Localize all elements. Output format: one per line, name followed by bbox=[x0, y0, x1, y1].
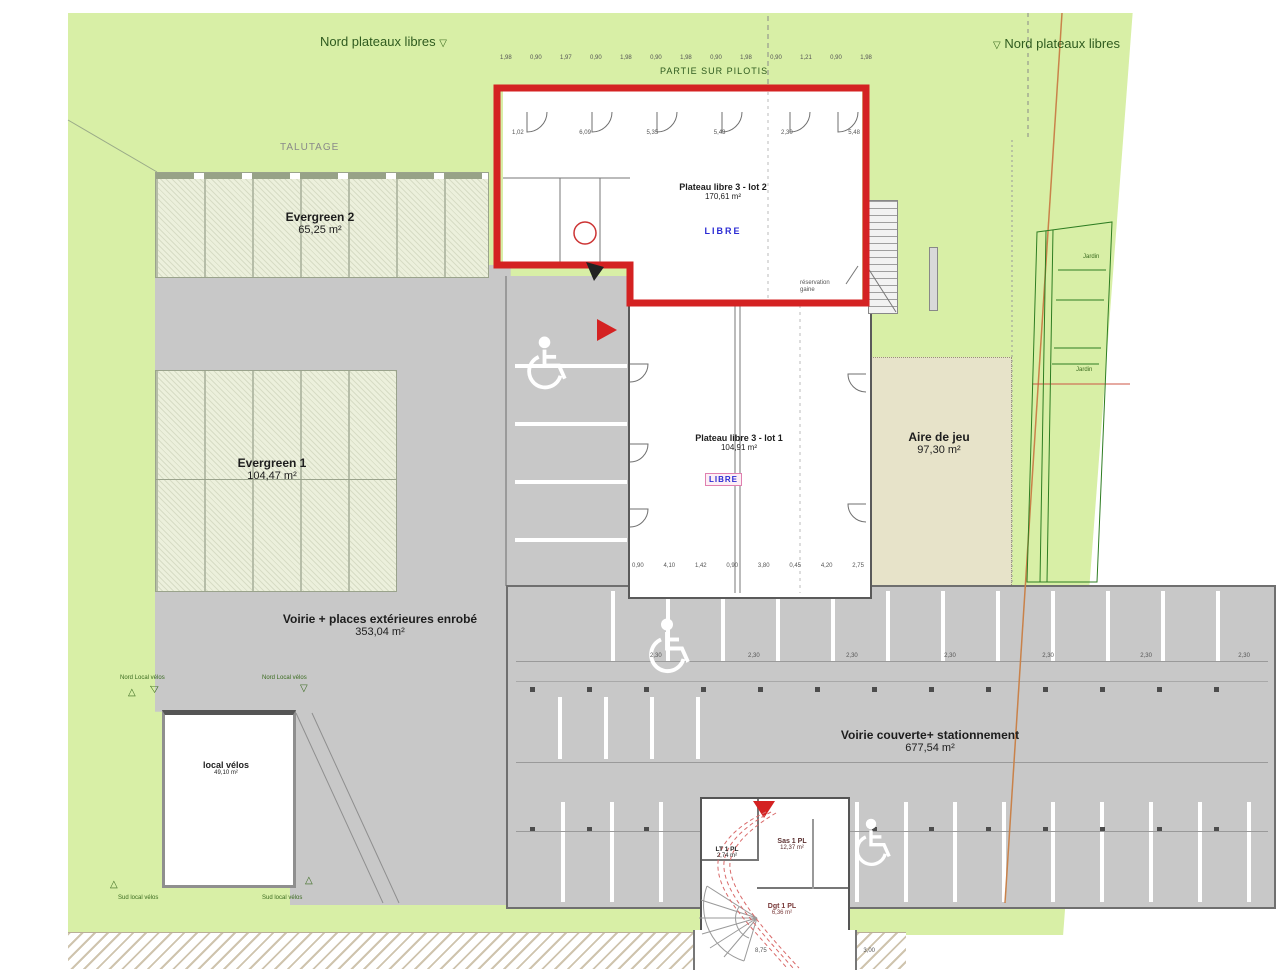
area-name: Aire de jeu bbox=[869, 430, 1009, 444]
dimension-row-bottom: 8,753,00 bbox=[755, 948, 875, 954]
dimension-row-lot2: 1,026,095,355,432,305,48 bbox=[512, 130, 860, 136]
sud-local-velos-label: Sud local vélos bbox=[262, 895, 302, 901]
north-label-text: Nord plateaux libres bbox=[320, 34, 436, 49]
area-size: 170,61 m² bbox=[633, 192, 813, 201]
area-size: 6,36 m² bbox=[750, 910, 814, 916]
dim: 2,30 bbox=[1140, 653, 1152, 659]
dim: 1,98 bbox=[680, 55, 692, 61]
dim: 0,90 bbox=[530, 55, 542, 61]
area-name: local vélos bbox=[172, 760, 280, 770]
wheelchair-icon bbox=[857, 819, 889, 865]
dim: 2,75 bbox=[852, 563, 864, 569]
sas-label: Sas 1 PL 12,37 m² bbox=[760, 838, 824, 851]
wheelchair-icon bbox=[529, 337, 565, 388]
area-name: Plateau libre 3 - lot 1 bbox=[649, 433, 829, 443]
north-label-text: Nord plateaux libres bbox=[1004, 36, 1120, 51]
area-name: Dgt 1 PL bbox=[750, 903, 814, 910]
dgt-label: Dgt 1 PL 6,36 m² bbox=[750, 903, 814, 916]
dim: 2,30 bbox=[1238, 653, 1250, 659]
dim: 1,98 bbox=[740, 55, 752, 61]
voirie-ext-label: Voirie + places extérieures enrobé 353,0… bbox=[230, 612, 530, 638]
linework-overlay bbox=[0, 0, 1280, 970]
dim: 4,10 bbox=[663, 563, 675, 569]
area-name: LT 1 PL bbox=[702, 846, 752, 853]
triangle-marker-icon: △ bbox=[128, 688, 136, 698]
door-arcs bbox=[527, 112, 866, 527]
area-size: 677,54 m² bbox=[790, 742, 1070, 754]
dim: 1,98 bbox=[860, 55, 872, 61]
dim: 2,30 bbox=[650, 653, 662, 659]
leader-line bbox=[846, 266, 858, 284]
dim: 1,42 bbox=[695, 563, 707, 569]
area-size: 12,37 m² bbox=[760, 845, 824, 851]
dim: 0,90 bbox=[770, 55, 782, 61]
area-name: Voirie couverte+ stationnement bbox=[790, 728, 1070, 742]
area-name: Evergreen 1 bbox=[182, 456, 362, 470]
triangle-down-icon: ▽ bbox=[993, 40, 1001, 51]
dimension-row-parking: 2,302,302,302,302,302,302,30 bbox=[650, 653, 1250, 659]
area-size: 65,25 m² bbox=[230, 224, 410, 236]
triangle-marker-icon: △ bbox=[110, 880, 118, 890]
wheelchair-icon bbox=[651, 619, 688, 672]
dim: 3,00 bbox=[863, 948, 875, 954]
dim: 5,48 bbox=[848, 130, 860, 136]
jardin-label: Jardin bbox=[1076, 367, 1092, 373]
area-size: 104,47 m² bbox=[182, 470, 362, 482]
dim: 1,21 bbox=[800, 55, 812, 61]
dim: 1,02 bbox=[512, 130, 524, 136]
area-size: 49,10 m² bbox=[172, 770, 280, 776]
north-label-right: ▽ Nord plateaux libres bbox=[993, 36, 1135, 51]
dim: 0,90 bbox=[726, 563, 738, 569]
area-size: 97,30 m² bbox=[869, 444, 1009, 456]
jardin-plots bbox=[1027, 222, 1112, 582]
dimension-row-lot1: 0,904,101,420,903,800,454,202,75 bbox=[632, 563, 864, 569]
area-size: 2,74 m² bbox=[702, 853, 752, 859]
area-name: Voirie + places extérieures enrobé bbox=[230, 612, 530, 626]
area-name: Evergreen 2 bbox=[230, 210, 410, 224]
area-name: Sas 1 PL bbox=[760, 838, 824, 845]
dim: 4,20 bbox=[821, 563, 833, 569]
dim: 8,75 bbox=[755, 948, 767, 954]
voirie-couverte-label: Voirie couverte+ stationnement 677,54 m² bbox=[790, 728, 1070, 754]
dimension-row-top: 1,980,901,970,901,980,901,980,901,980,90… bbox=[500, 55, 872, 61]
dim: 2,30 bbox=[781, 130, 793, 136]
site-plan: Nord plateaux libres ▽ ▽ Nord plateaux l… bbox=[0, 0, 1280, 970]
dim: 2,30 bbox=[846, 653, 858, 659]
dim: 0,90 bbox=[830, 55, 842, 61]
lt-label: LT 1 PL 2,74 m² bbox=[702, 846, 752, 859]
dim: 1,97 bbox=[560, 55, 572, 61]
entry-triangle-marker bbox=[597, 319, 617, 341]
nord-local-velos-label: Nord Local vélos bbox=[120, 675, 165, 681]
dim: 1,98 bbox=[620, 55, 632, 61]
dim: 0,45 bbox=[789, 563, 801, 569]
lot1-label: Plateau libre 3 - lot 1 104,91 m² bbox=[649, 433, 829, 452]
triangle-down-icon: ▽ bbox=[439, 38, 447, 49]
dim: 6,09 bbox=[579, 130, 591, 136]
red-dashed-path bbox=[718, 812, 799, 968]
local-velos-label: local vélos 49,10 m² bbox=[172, 760, 280, 776]
aire-de-jeu-label: Aire de jeu 97,30 m² bbox=[869, 430, 1009, 456]
dim: 0,90 bbox=[650, 55, 662, 61]
reservation-gaine-note: réservation gaine bbox=[800, 280, 846, 294]
dim: 5,35 bbox=[647, 130, 659, 136]
area-size: 104,91 m² bbox=[649, 443, 829, 452]
evergreen1-label: Evergreen 1 104,47 m² bbox=[182, 456, 362, 482]
area-size: 353,04 m² bbox=[230, 626, 530, 638]
dim: 2,30 bbox=[1042, 653, 1054, 659]
dim: 5,43 bbox=[714, 130, 726, 136]
evergreen2-label: Evergreen 2 65,25 m² bbox=[230, 210, 410, 236]
dim: 2,30 bbox=[748, 653, 760, 659]
partie-sur-pilotis-label: PARTIE SUR PILOTIS bbox=[660, 66, 820, 76]
triangle-marker-icon: △ bbox=[305, 876, 313, 886]
area-name: Plateau libre 3 - lot 2 bbox=[633, 182, 813, 192]
lot2-label: Plateau libre 3 - lot 2 170,61 m² bbox=[633, 182, 813, 201]
triangle-marker-icon: ▽ bbox=[300, 684, 308, 694]
dim: 3,80 bbox=[758, 563, 770, 569]
dim: 0,90 bbox=[710, 55, 722, 61]
parcel-boundary-line bbox=[1005, 13, 1062, 903]
nord-local-velos-label: Nord Local vélos bbox=[262, 675, 307, 681]
dim: 2,30 bbox=[944, 653, 956, 659]
talutage-label: TALUTAGE bbox=[280, 142, 339, 153]
north-label-left: Nord plateaux libres ▽ bbox=[320, 34, 447, 49]
dim: 0,90 bbox=[632, 563, 644, 569]
sud-local-velos-label: Sud local vélos bbox=[118, 895, 158, 901]
stair-direction-line bbox=[868, 268, 896, 312]
dim: 1,98 bbox=[500, 55, 512, 61]
wc-fixture-circle bbox=[574, 222, 596, 244]
lot1-libre-badge: LIBRE bbox=[705, 473, 742, 486]
talus-line bbox=[68, 120, 157, 172]
lot2-libre-badge: LIBRE bbox=[688, 226, 758, 236]
dim: 0,90 bbox=[590, 55, 602, 61]
jardin-label: Jardin bbox=[1083, 254, 1099, 260]
